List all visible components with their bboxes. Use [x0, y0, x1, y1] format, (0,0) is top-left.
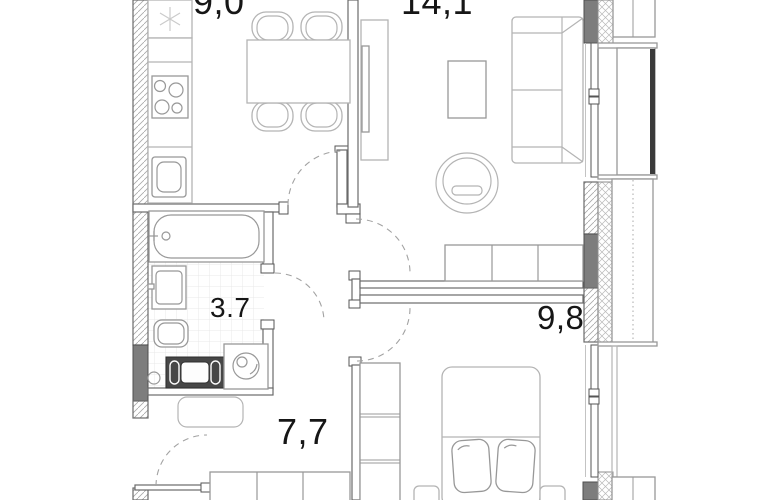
- kitchen-sink-icon: [152, 157, 186, 197]
- sofa-icon: [512, 17, 583, 163]
- coffee-table-icon: [448, 61, 486, 118]
- living-room-window-icon: [586, 43, 600, 177]
- living-room: [361, 17, 583, 281]
- tv-icon: [361, 20, 388, 160]
- towel-dryer-icon: [166, 357, 224, 388]
- nightstand-icon: [540, 486, 565, 500]
- room-label-bedroom: 9,8: [537, 299, 584, 336]
- room-label-kitchen: 9,0: [193, 0, 245, 22]
- bedroom: [360, 363, 565, 500]
- bed-icon: [442, 367, 540, 500]
- armchair-icon: [436, 153, 498, 213]
- dining-set: [247, 12, 350, 131]
- room-label-hallway: 7,7: [277, 411, 329, 452]
- floor-plan-svg: 9,0 14,1 3.7 9,8 7,7: [0, 0, 770, 500]
- room-label-bathroom: 3.7: [210, 292, 250, 323]
- bench-icon: [178, 397, 243, 427]
- bathtub-icon: [149, 211, 264, 262]
- bedroom-window-icon: [586, 345, 600, 477]
- floor-plan-canvas: 9,0 14,1 3.7 9,8 7,7: [0, 0, 770, 500]
- wardrobe-icon: [360, 363, 400, 500]
- nightstand-icon: [414, 486, 439, 500]
- vent-shaft: [133, 345, 148, 401]
- closet-icon: [445, 245, 583, 281]
- washing-machine-icon: [224, 344, 268, 389]
- toilet-icon: [154, 320, 188, 347]
- room-label-living: 14,1: [401, 0, 473, 22]
- washbasin-icon: [148, 266, 186, 309]
- fridge-icon: [148, 0, 192, 38]
- dining-table-icon: [247, 40, 350, 103]
- hall-closet-icon: [210, 472, 350, 500]
- kitchen: [148, 0, 350, 203]
- stove-icon: [152, 76, 188, 118]
